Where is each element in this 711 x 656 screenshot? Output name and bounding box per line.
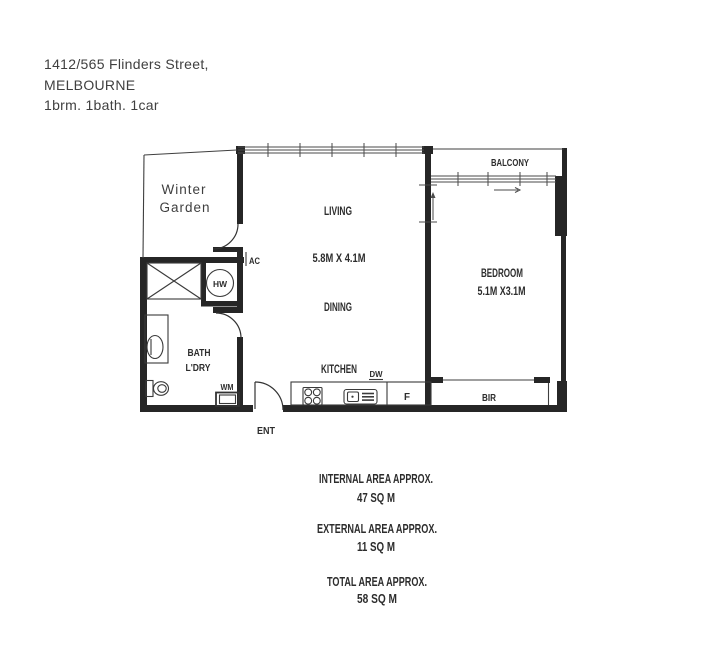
property-summary: 1brm. 1bath. 1car: [44, 97, 159, 113]
wm-label: WM: [221, 383, 234, 392]
living-dimensions: 5.8M X 4.1M: [313, 253, 366, 265]
bedroom-label: BEDROOM: [481, 268, 523, 280]
bedroom-dimensions: 5.1M X3.1M: [478, 286, 526, 298]
bedroom-window: [431, 172, 556, 193]
bir-cap-right: [534, 377, 550, 383]
slider-arrow-right-icon: [494, 188, 520, 193]
washing-machine: WM: [216, 383, 239, 406]
sink: [344, 390, 377, 405]
kitchen-label: KITCHEN: [321, 364, 357, 376]
wall-shower-top: [140, 257, 244, 263]
hw-label: HW: [213, 279, 228, 289]
total-area-value: 58 SQ M: [357, 591, 397, 606]
address-line2: MELBOURNE: [44, 77, 135, 93]
shower: [147, 263, 201, 299]
balcony-label: BALCONY: [491, 157, 529, 169]
bath-label-1: BATH: [188, 347, 211, 359]
living-label: LIVING: [324, 206, 352, 218]
dining-label: DINING: [324, 302, 352, 314]
total-area-label: TOTAL AREA APPROX.: [327, 574, 427, 589]
kitchen-counter: DW F: [291, 369, 431, 405]
ac-unit: AC: [246, 252, 260, 266]
external-area-label: EXTERNAL AREA APPROX.: [317, 521, 437, 536]
wg-left-line: [143, 155, 144, 258]
external-area-value: 11 SQ M: [357, 539, 395, 554]
wall-bath-right: [237, 337, 243, 412]
vanity-basin: [145, 315, 168, 363]
bath-door-arc: [216, 313, 241, 338]
area-summary: INTERNAL AREA APPROX. 47 SQ M EXTERNAL A…: [317, 471, 437, 606]
header: 1412/565 Flinders Street, MELBOURNE 1brm…: [44, 56, 209, 113]
living-window: [238, 143, 424, 157]
bath-label-2: L'DRY: [186, 362, 211, 374]
floorplan-page: 1412/565 Flinders Street, MELBOURNE 1brm…: [0, 0, 711, 656]
cooktop: [303, 388, 322, 406]
slider-arrow-up-icon: [431, 192, 436, 220]
ac-label: AC: [249, 256, 260, 266]
wall-bedroom-right: [561, 236, 566, 381]
wall-corner-br: [557, 381, 567, 412]
wg-top-line: [144, 150, 237, 155]
entry-label: ENT: [257, 425, 276, 437]
hot-water-unit: HW: [207, 270, 234, 297]
wall-hw-bottom: [201, 301, 243, 307]
wall-bath-door-stub: [213, 307, 243, 313]
wall-shower-divider: [201, 257, 206, 306]
built-in-robe: BIR: [443, 380, 549, 405]
column-bedroom: [555, 176, 567, 236]
fridge-label: F: [404, 392, 410, 403]
wall-balcony-right: [562, 148, 567, 177]
dw-label: DW: [370, 369, 384, 379]
wall-wg-right: [237, 148, 243, 224]
internal-area-label: INTERNAL AREA APPROX.: [319, 471, 433, 486]
toilet: [146, 381, 169, 397]
wg-door-arc: [213, 224, 238, 249]
windows: [238, 143, 564, 222]
dishwasher: DW: [369, 369, 383, 380]
internal-area-value: 47 SQ M: [357, 490, 395, 505]
address-line1: 1412/565 Flinders Street,: [44, 56, 209, 72]
bir-label: BIR: [482, 392, 496, 404]
wall-living-bedroom: [425, 146, 431, 412]
winter-garden-label-1: Winter: [161, 182, 206, 197]
entry-door: [255, 382, 283, 410]
winter-garden-label-2: Garden: [159, 200, 210, 215]
floorplan-canvas: 1412/565 Flinders Street, MELBOURNE 1brm…: [0, 0, 711, 656]
